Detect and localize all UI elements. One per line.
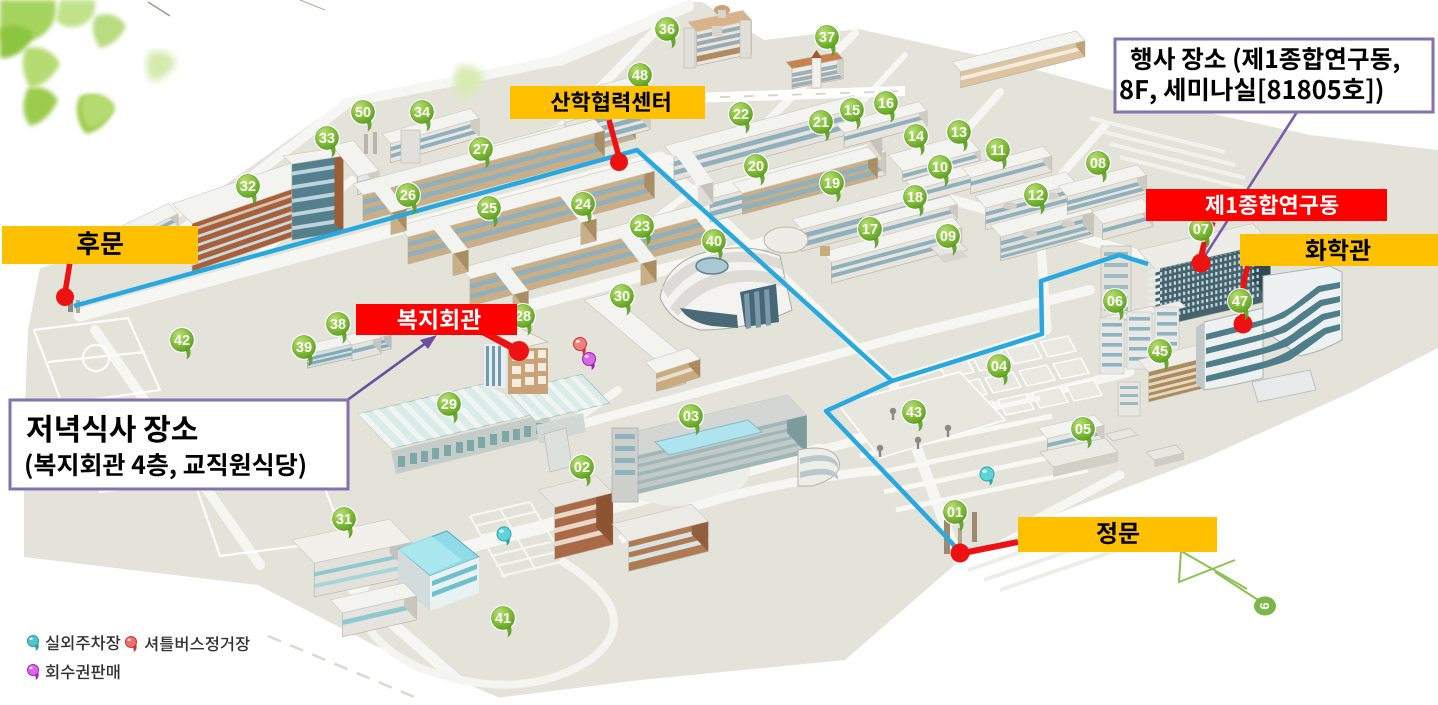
svg-text:05: 05 (1075, 422, 1091, 438)
svg-text:09: 09 (940, 229, 956, 245)
svg-text:40: 40 (706, 234, 722, 250)
svg-text:16: 16 (878, 96, 894, 112)
svg-text:08: 08 (1090, 156, 1106, 172)
svg-text:07: 07 (1193, 222, 1209, 238)
svg-text:12: 12 (1028, 188, 1044, 204)
svg-text:47: 47 (1232, 294, 1248, 310)
svg-text:28: 28 (515, 309, 531, 325)
svg-text:21: 21 (813, 115, 829, 131)
svg-text:02: 02 (574, 460, 590, 476)
svg-text:38: 38 (330, 317, 346, 333)
svg-text:19: 19 (824, 176, 840, 192)
svg-text:20: 20 (748, 159, 764, 175)
svg-text:39: 39 (296, 340, 312, 356)
svg-text:45: 45 (1152, 344, 1168, 360)
svg-text:17: 17 (862, 222, 878, 238)
svg-text:42: 42 (174, 333, 190, 349)
svg-text:30: 30 (614, 289, 630, 305)
svg-text:03: 03 (683, 409, 699, 425)
svg-text:50: 50 (355, 105, 371, 121)
svg-text:10: 10 (932, 160, 948, 176)
svg-text:11: 11 (990, 143, 1005, 159)
svg-text:26: 26 (400, 188, 416, 204)
svg-text:32: 32 (240, 179, 256, 195)
svg-text:43: 43 (906, 405, 922, 421)
svg-text:27: 27 (473, 142, 489, 158)
svg-text:48: 48 (632, 68, 648, 84)
svg-text:22: 22 (733, 107, 749, 123)
svg-text:36: 36 (659, 22, 675, 38)
svg-text:15: 15 (844, 103, 860, 119)
svg-text:04: 04 (991, 359, 1007, 375)
svg-text:24: 24 (575, 197, 591, 213)
svg-text:29: 29 (441, 397, 457, 413)
svg-text:9: 9 (1257, 602, 1272, 609)
svg-text:14: 14 (908, 129, 924, 145)
svg-text:18: 18 (907, 190, 923, 206)
svg-text:41: 41 (495, 611, 511, 627)
svg-text:13: 13 (951, 125, 967, 141)
svg-text:06: 06 (1107, 294, 1123, 310)
svg-text:37: 37 (819, 30, 835, 46)
svg-text:34: 34 (414, 105, 430, 121)
svg-text:33: 33 (319, 131, 335, 147)
svg-text:31: 31 (336, 512, 352, 528)
svg-text:01: 01 (947, 505, 963, 521)
svg-text:23: 23 (634, 219, 650, 235)
svg-text:25: 25 (481, 201, 497, 217)
